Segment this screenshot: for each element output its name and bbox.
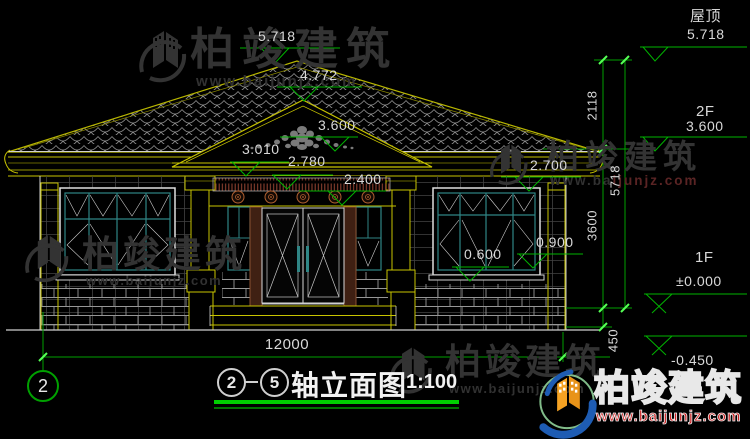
window-sill-right (429, 275, 544, 280)
level-f1-value: ±0.000 (676, 273, 722, 289)
plinth-bricks-right (397, 284, 565, 330)
watermark-color-logo (537, 364, 597, 439)
mark-ridge-label: 5.718 (258, 28, 296, 44)
brand-logo-icon (138, 24, 188, 88)
mark-0900-label: 0.900 (536, 234, 574, 250)
window-right (429, 188, 544, 280)
door-handle-right (306, 246, 309, 272)
level-f2-value: 3.600 (686, 118, 724, 134)
drawing-scale: 1:100 (406, 371, 457, 394)
watermark-brand: 柏竣建筑 (546, 140, 702, 173)
vdim-5718: 5718 (608, 159, 623, 203)
watermark-url-right: ijunjz.com (613, 173, 699, 188)
mark-2700-label: 2.700 (530, 157, 568, 173)
watermark-bottom-right: 柏竣建筑 www.baijunjz.com (594, 370, 750, 428)
watermark-brand: 柏竣建筑 (82, 236, 246, 273)
level-ground-value: -0.450 (671, 352, 714, 368)
watermark-url: www.baijunjz.com (86, 274, 222, 287)
vdim-2118: 2118 (585, 84, 600, 128)
level-roof-value: 5.718 (687, 26, 725, 42)
title-axis-from: 2 (217, 368, 246, 397)
watermark-brand: 柏竣建筑 (594, 370, 742, 406)
watermark-url: www.baijunjz.com (596, 408, 741, 425)
brand-logo-color-icon (537, 364, 597, 439)
brand-logo-icon (24, 230, 70, 286)
title-axis-to: 5 (260, 368, 289, 397)
watermark-mid-left: 柏竣建筑 www.baijunjz.com (24, 228, 264, 292)
door-handle-left (297, 246, 300, 272)
drawing-title: 轴立面图 (291, 364, 407, 404)
mark-eave-label: 3.600 (318, 117, 356, 133)
mark-2400-label: 2.400 (344, 171, 382, 187)
dim-total-width: 12000 (247, 336, 327, 353)
axis-bubble-2: 2 (27, 370, 59, 402)
level-roof-label: 屋顶 (690, 5, 721, 26)
door-side-window-right (356, 207, 381, 270)
vdim-3600: 3600 (585, 204, 600, 248)
mark-0600-label: 0.600 (464, 246, 502, 262)
title-dash (244, 381, 258, 383)
title-underline-thin (214, 407, 459, 409)
brand-logo-icon (486, 140, 532, 188)
watermark-url: www.baijunjz.com (550, 174, 699, 188)
mark-2780-label: 2.780 (288, 153, 326, 169)
level-f1-label: 1F (695, 249, 714, 266)
title-underline-thick (214, 400, 459, 404)
mark-3010-label: 3.010 (242, 141, 280, 157)
level-markers-right (640, 47, 747, 355)
cad-elevation-drawing: 柏竣建筑 www.baijunjz.com 柏竣建筑 www.baijunjz.… (0, 0, 750, 439)
watermark-url-left: www.ba (550, 173, 613, 188)
mark-porch-ridge-label: 4.772 (300, 67, 338, 83)
vdim-450: 450 (606, 319, 621, 363)
entry-door (250, 207, 356, 306)
